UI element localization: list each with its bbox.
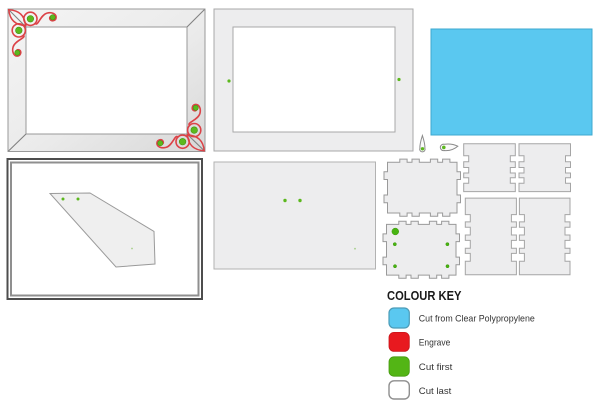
svg-text:Cut from Clear Polypropylene: Cut from Clear Polypropylene [419,313,535,323]
svg-text:Engrave: Engrave [419,338,451,348]
svg-text:COLOUR KEY: COLOUR KEY [387,288,462,303]
svg-text:Cut first: Cut first [419,362,453,372]
svg-text:Cut last: Cut last [419,386,452,396]
